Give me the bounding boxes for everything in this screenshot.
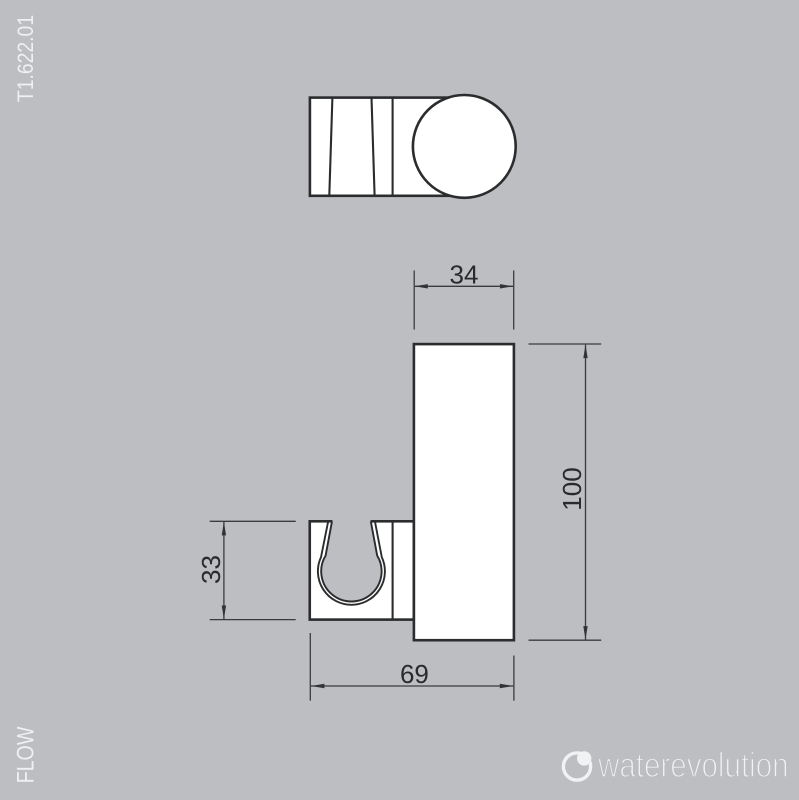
svg-text:100: 100 (557, 467, 587, 510)
svg-text:69: 69 (400, 659, 429, 689)
svg-text:T1.622.01: T1.622.01 (14, 15, 38, 102)
svg-text:FLOW: FLOW (12, 726, 39, 783)
svg-text:33: 33 (196, 555, 226, 584)
svg-text:waterevolution: waterevolution (597, 744, 789, 784)
svg-text:34: 34 (450, 259, 479, 289)
